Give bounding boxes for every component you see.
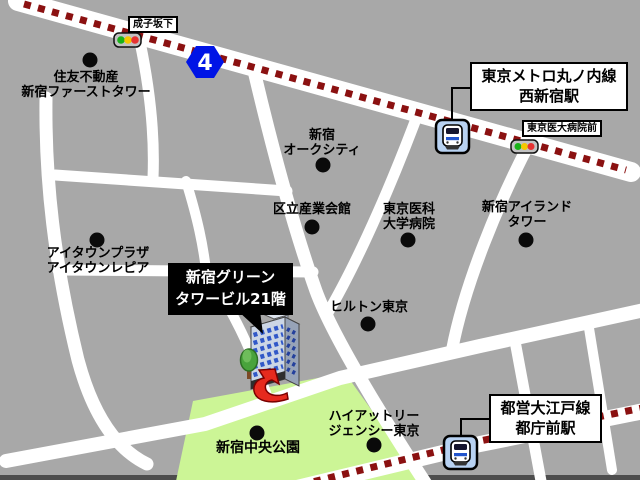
dot-chuo-park bbox=[250, 426, 265, 441]
station-icon-tochomae bbox=[444, 436, 477, 469]
road-left-curve bbox=[46, 98, 147, 464]
landmark-label-oakcity: 新宿 オークシティ bbox=[283, 129, 360, 158]
landmark-label-sangyo-kaikan: 区立産業会館 bbox=[273, 203, 351, 218]
yellow-light bbox=[124, 36, 132, 44]
green-light bbox=[515, 143, 522, 150]
red-light bbox=[528, 143, 535, 150]
station-label-tochomae: 都営大江戸線 都庁前駅 bbox=[489, 394, 602, 443]
station-icon-nishi-shinjuku bbox=[436, 120, 469, 153]
landmark-label-itown: アイタウンプラザ アイタウンレピア bbox=[47, 247, 150, 276]
road-horizontal-north bbox=[55, 175, 287, 191]
traffic-light-narukozaka bbox=[114, 33, 141, 47]
red-light bbox=[131, 36, 139, 44]
dot-hyatt bbox=[367, 438, 382, 453]
route-4-number: 4 bbox=[197, 51, 212, 76]
landmark-label-idai-byoin: 東京医科 大学病院 bbox=[383, 203, 435, 232]
landmark-label-hyatt: ハイアットリー ジェンシー東京 bbox=[328, 410, 419, 439]
dot-hilton bbox=[361, 317, 376, 332]
landmark-label-sumitomo: 住友不動産 新宿ファーストタワー bbox=[21, 71, 150, 100]
signal-label-idai-byoin-mae: 東京医大病院前 bbox=[522, 120, 602, 137]
station-label-nishi-shinjuku: 東京メトロ丸ノ内線 西新宿駅 bbox=[470, 62, 628, 111]
dot-sangyo-kaikan bbox=[305, 220, 320, 235]
road-idai-east bbox=[452, 146, 528, 350]
dot-island-tower bbox=[519, 233, 534, 248]
dot-idai-byoin bbox=[401, 233, 416, 248]
traffic-light-idai-mae bbox=[511, 140, 538, 153]
destination-callout: 新宿グリーン タワービル21階 bbox=[168, 263, 293, 315]
tochomae-connector bbox=[461, 419, 489, 437]
landmark-label-hilton: ヒルトン東京 bbox=[330, 301, 408, 316]
landmark-label-island-tower: 新宿アイランド タワー bbox=[482, 201, 572, 230]
signal-label-narukozaka: 成子坂下 bbox=[128, 16, 178, 33]
green-light bbox=[117, 36, 125, 44]
route-map: 4 bbox=[0, 0, 640, 480]
landmark-label-chuo-park: 新宿中央公園 bbox=[216, 441, 300, 457]
road-west-vertical bbox=[140, 42, 153, 178]
dot-oakcity bbox=[316, 158, 331, 173]
yellow-light bbox=[521, 143, 528, 150]
dot-sumitomo bbox=[83, 53, 98, 68]
